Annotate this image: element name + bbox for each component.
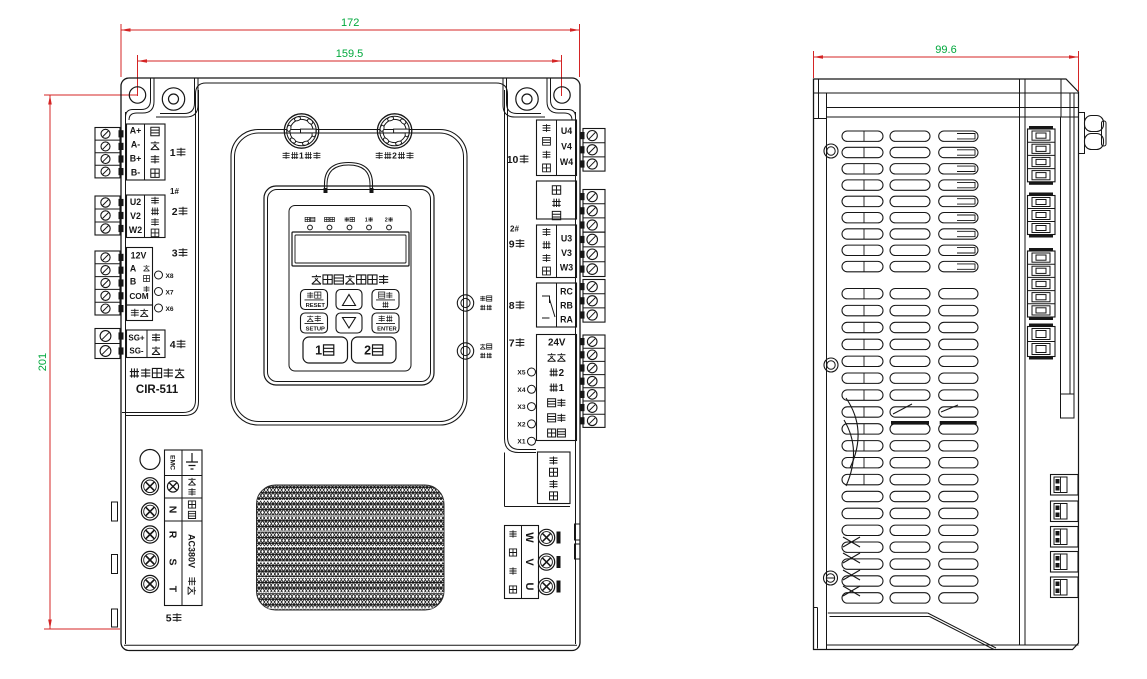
svg-text:X7: X7 <box>166 290 174 297</box>
svg-text:U2: U2 <box>130 197 141 207</box>
svg-text:X5: X5 <box>517 370 525 377</box>
svg-text:8: 8 <box>509 300 515 312</box>
svg-text:ENTER: ENTER <box>377 326 397 332</box>
svg-text:RB: RB <box>560 301 573 311</box>
svg-text:RC: RC <box>560 287 573 297</box>
svg-text:159.5: 159.5 <box>336 48 364 60</box>
svg-text:99.6: 99.6 <box>935 44 956 56</box>
svg-text:A-: A- <box>131 140 140 150</box>
svg-text:2: 2 <box>385 217 388 223</box>
svg-text:RESET: RESET <box>306 303 326 309</box>
svg-text:N: N <box>167 506 179 514</box>
svg-text:1: 1 <box>315 344 322 358</box>
svg-text:COM: COM <box>129 291 148 301</box>
svg-text:X1: X1 <box>517 439 525 446</box>
svg-text:B+: B+ <box>130 154 142 164</box>
svg-text:2: 2 <box>364 344 371 358</box>
svg-text:24V: 24V <box>548 338 566 349</box>
svg-text:B-: B- <box>131 168 140 178</box>
svg-text:U3: U3 <box>561 234 572 244</box>
svg-text:4: 4 <box>170 339 176 351</box>
svg-text:172: 172 <box>341 17 359 29</box>
svg-text:5: 5 <box>166 612 172 624</box>
svg-text:EMC: EMC <box>169 455 176 470</box>
svg-text:B: B <box>130 277 136 287</box>
svg-text:X2: X2 <box>517 421 525 428</box>
svg-text:W4: W4 <box>560 157 573 167</box>
svg-text:X8: X8 <box>166 273 174 280</box>
svg-text:SG-: SG- <box>129 347 144 356</box>
svg-text:1: 1 <box>299 151 304 161</box>
svg-text:SETUP: SETUP <box>306 326 325 332</box>
svg-text:S: S <box>167 558 179 565</box>
svg-text:2: 2 <box>392 151 397 161</box>
svg-text:X3: X3 <box>517 404 525 411</box>
svg-text:2: 2 <box>172 206 178 218</box>
svg-text:X4: X4 <box>517 387 525 394</box>
svg-text:CIR-511: CIR-511 <box>136 384 179 396</box>
svg-text:201: 201 <box>37 353 49 371</box>
svg-text:2#: 2# <box>510 225 519 234</box>
svg-text:12V: 12V <box>131 251 147 261</box>
svg-text:V: V <box>523 558 535 566</box>
svg-text:X6: X6 <box>166 306 174 313</box>
svg-text:1#: 1# <box>170 187 179 196</box>
svg-text:T: T <box>167 586 179 593</box>
svg-text:10: 10 <box>507 154 519 166</box>
svg-text:R: R <box>167 531 179 539</box>
svg-text:V3: V3 <box>561 248 572 258</box>
svg-text:W2: W2 <box>129 225 142 235</box>
svg-text:RA: RA <box>560 315 573 325</box>
svg-text:AC380V: AC380V <box>187 534 197 568</box>
svg-text:U: U <box>523 583 535 591</box>
svg-text:A+: A+ <box>130 126 142 136</box>
svg-text:A: A <box>130 264 137 274</box>
svg-text:V2: V2 <box>130 211 141 221</box>
svg-text:1: 1 <box>170 147 176 159</box>
svg-text:U4: U4 <box>561 126 572 136</box>
svg-text:3: 3 <box>172 247 178 259</box>
svg-text:1: 1 <box>365 217 368 223</box>
svg-text:W3: W3 <box>560 263 573 273</box>
svg-text:1: 1 <box>559 383 565 394</box>
svg-text:W: W <box>523 532 535 543</box>
svg-text:2: 2 <box>559 368 565 379</box>
svg-text:SG+: SG+ <box>128 334 145 343</box>
svg-text:7: 7 <box>509 337 515 349</box>
svg-text:V4: V4 <box>561 142 572 152</box>
svg-text:9: 9 <box>509 238 515 250</box>
